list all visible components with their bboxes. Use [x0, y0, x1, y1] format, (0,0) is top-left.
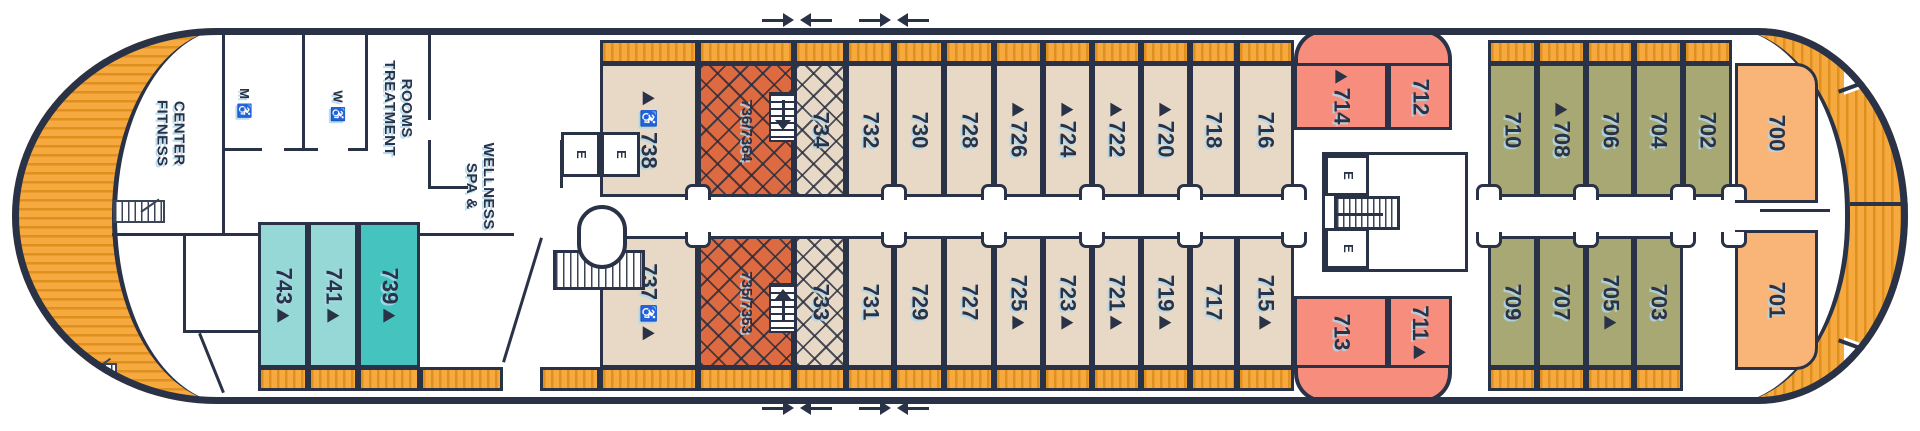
- elevator-label: E: [613, 150, 628, 159]
- stern-corridor-wall: [1760, 209, 1830, 212]
- cabin-number-label: 733: [807, 284, 833, 321]
- elevator[interactable]: E: [1325, 228, 1369, 269]
- cabin-label-wrap: 716: [1240, 66, 1291, 194]
- corridor-door-alcove: [1476, 232, 1502, 248]
- wall-locker-bottom-2: [284, 148, 318, 151]
- cabin-number-label: 730: [906, 112, 932, 149]
- cabin-number-label: 722: [1104, 103, 1130, 158]
- cabin-716[interactable]: 716: [1237, 63, 1294, 197]
- cabin-label-wrap: 729: [897, 239, 941, 365]
- cabin-label-wrap: 702: [1686, 66, 1729, 194]
- balcony-733: [794, 367, 846, 391]
- cabin-label-wrap: 720: [1144, 66, 1187, 194]
- cabin-700[interactable]: 700: [1735, 63, 1818, 203]
- corridor-door-alcove: [1573, 184, 1599, 200]
- balcony-727: [944, 367, 994, 391]
- cabin-number-label: 717: [1201, 284, 1227, 321]
- balcony-734: [794, 40, 846, 64]
- cabin-number-label: 710: [1500, 112, 1526, 149]
- berth-triangle-icon: [1013, 315, 1025, 329]
- cabin-number-label: 726: [1006, 103, 1032, 158]
- cabin-701[interactable]: 701: [1735, 230, 1818, 370]
- corridor-door-alcove: [981, 184, 1007, 200]
- cabin-label-wrap: 717: [1193, 239, 1234, 365]
- cabin-number: 718: [1201, 112, 1227, 149]
- cabin-number: 734: [807, 112, 833, 149]
- cabin-730[interactable]: 730: [894, 63, 944, 197]
- corridor-door-alcove: [1721, 232, 1747, 248]
- vestibule-room: [183, 233, 263, 333]
- cabin-702[interactable]: 702: [1683, 63, 1732, 197]
- balcony-730: [894, 40, 944, 64]
- cabin-711[interactable]: 711: [1388, 296, 1452, 368]
- arrow-head: [800, 13, 811, 27]
- cabin-number-label: 703: [1646, 284, 1672, 321]
- cabin-label-wrap: 710: [1491, 66, 1534, 194]
- treatment-label-line2: ROOMS: [398, 79, 415, 138]
- cabin-number-label: 731: [857, 284, 883, 321]
- balcony-728: [944, 40, 994, 64]
- corridor-door-alcove: [1721, 184, 1747, 200]
- cabin-number: 743: [270, 268, 296, 305]
- balcony-702: [1683, 40, 1732, 64]
- cabin-734[interactable]: 734: [794, 63, 846, 197]
- cabin-number-label: 707: [1549, 284, 1575, 321]
- cabin-label-wrap: 711: [1391, 299, 1449, 365]
- balcony-706: [1586, 40, 1634, 64]
- cabin-713[interactable]: 713: [1294, 296, 1388, 368]
- cabin-label-wrap: 713: [1297, 299, 1385, 365]
- cabin-label-wrap: 741: [311, 225, 355, 365]
- balcony-704: [1634, 40, 1683, 64]
- elevator[interactable]: E: [601, 132, 640, 177]
- balcony-743: [258, 367, 308, 391]
- cabin-number: 721: [1104, 275, 1130, 312]
- balcony-726: [994, 40, 1043, 64]
- wall-mw-divider: [302, 28, 305, 150]
- berth-triangle-icon: [1335, 69, 1347, 83]
- cabin-743[interactable]: 743: [258, 222, 308, 368]
- berth-triangle-icon: [643, 327, 655, 341]
- cabin-label-wrap: 705: [1589, 239, 1631, 365]
- corridor-door-alcove: [1281, 232, 1307, 248]
- corridor-door-alcove: [1670, 184, 1696, 200]
- cabin-number-label: 715: [1253, 275, 1279, 330]
- wall-fitness-right: [222, 28, 225, 233]
- cabin-715[interactable]: 715: [1237, 236, 1294, 368]
- cabin-number: 715: [1253, 275, 1279, 312]
- balcony-715: [1237, 367, 1294, 391]
- cabin-number-label: 706: [1597, 112, 1623, 149]
- arrow-head: [783, 13, 794, 27]
- berth-triangle-icon: [1160, 103, 1172, 117]
- cabin-number-label: 724: [1055, 103, 1081, 158]
- corridor-door-alcove: [881, 184, 907, 200]
- cabin-707[interactable]: 707: [1537, 236, 1586, 368]
- cabin-729[interactable]: 729: [894, 236, 944, 368]
- arrow-head: [897, 401, 908, 415]
- arrow-head: [783, 401, 794, 415]
- cabin-719[interactable]: 719: [1141, 236, 1190, 368]
- cabin-number-label: 736/7364: [737, 99, 754, 162]
- corridor-door-alcove: [1177, 232, 1203, 248]
- cabin-number: 708: [1549, 121, 1575, 158]
- fitness-label-line2: CENTER: [170, 101, 187, 166]
- cabin-number: 716: [1253, 112, 1279, 149]
- balcony-735-7353: [698, 367, 794, 391]
- corridor-door-alcove: [685, 232, 711, 248]
- cabin-label-wrap: 719: [1144, 239, 1187, 365]
- cabin-number-label: 708: [1549, 103, 1575, 158]
- balcony-716: [1237, 40, 1294, 64]
- cabin-724[interactable]: 724: [1043, 63, 1092, 197]
- cabin-number-label: 719: [1153, 275, 1179, 330]
- balcony-741: [308, 367, 358, 391]
- cabin-label-wrap: 726: [997, 66, 1040, 194]
- balcony-707: [1537, 367, 1586, 391]
- cabin-number: 723: [1055, 275, 1081, 312]
- berth-triangle-icon: [1556, 103, 1568, 117]
- arrow-stem: [859, 407, 880, 410]
- berth-triangle-icon: [1414, 345, 1426, 359]
- balcony-736-7364: [698, 40, 794, 64]
- cabin-number-label: 721: [1104, 275, 1130, 330]
- cabin-number: 720: [1153, 121, 1179, 158]
- cabin-label-wrap: 723: [1046, 239, 1089, 365]
- cabin-label-wrap: 704: [1637, 66, 1680, 194]
- cabin-721[interactable]: 721: [1092, 236, 1141, 368]
- arrow-stem: [908, 407, 929, 410]
- balcony-731: [846, 367, 894, 391]
- cabin-number-label: 728: [956, 112, 982, 149]
- womens-label-text: W ♿: [330, 90, 345, 122]
- cabin-710[interactable]: 710: [1488, 63, 1537, 197]
- cabin-number-label: 743: [270, 268, 296, 323]
- cabin-number-label: 723: [1055, 275, 1081, 330]
- wall-treatment-1: [428, 28, 431, 120]
- watertight-door-arrows: [762, 400, 832, 418]
- cabin-725[interactable]: 725: [994, 236, 1043, 368]
- cabin-714[interactable]: 714: [1294, 63, 1388, 130]
- cabin-label-wrap: 706: [1589, 66, 1631, 194]
- cabin-number: 701: [1764, 282, 1790, 319]
- cabin-label-wrap: 709: [1491, 239, 1534, 365]
- arrow-head: [880, 13, 891, 27]
- berth-triangle-icon: [643, 91, 655, 105]
- cabin-label-wrap: 703: [1637, 239, 1680, 365]
- balcony-walkway: [540, 367, 600, 391]
- cabin-number-label: 709: [1500, 284, 1526, 321]
- cabin-732[interactable]: 732: [846, 63, 894, 197]
- cabin-number: 733: [807, 284, 833, 321]
- cabin-number: 741: [320, 268, 346, 305]
- berth-triangle-icon: [1062, 315, 1074, 329]
- elevator[interactable]: E: [1325, 155, 1369, 196]
- cabin-number-label: 734: [807, 112, 833, 149]
- balcony-720: [1141, 40, 1190, 64]
- stair-arrow-stem: [782, 100, 785, 122]
- cabin-number: 717: [1201, 284, 1227, 321]
- balcony-709: [1488, 367, 1537, 391]
- mens-room-label: M ♿: [231, 83, 255, 123]
- watertight-door-arrows: [859, 400, 929, 418]
- cabin-717[interactable]: 717: [1190, 236, 1237, 368]
- cabin-number-label: 712: [1407, 78, 1433, 115]
- cabin-741[interactable]: 741: [308, 222, 358, 368]
- balcony-739: [358, 367, 420, 391]
- cabin-728[interactable]: 728: [944, 63, 994, 197]
- corridor-door-alcove: [1670, 232, 1696, 248]
- balcony-719: [1141, 367, 1190, 391]
- cabin-number: 735/7353: [737, 271, 754, 334]
- corridor-door-alcove: [685, 184, 711, 200]
- cabin-718[interactable]: 718: [1190, 63, 1237, 197]
- cabin-number: 726: [1006, 121, 1032, 158]
- cabin-label-wrap: 708: [1540, 66, 1583, 194]
- berth-triangle-icon: [1062, 103, 1074, 117]
- balcony-721: [1092, 367, 1141, 391]
- cabin-number-label: 705: [1597, 275, 1623, 330]
- cabin-number-label: 741: [320, 268, 346, 323]
- arrow-head: [897, 13, 908, 27]
- watertight-door-arrows: [762, 12, 832, 30]
- cabin-number: 728: [956, 112, 982, 149]
- wall-spa-top: [428, 186, 468, 189]
- treatment-label-line1: TREATMENT: [381, 61, 398, 157]
- cabin-number: 719: [1153, 275, 1179, 312]
- cabin-720[interactable]: 720: [1141, 63, 1190, 197]
- cabin-number: 714: [1328, 87, 1354, 124]
- balcony-705: [1586, 367, 1634, 391]
- cabin-703[interactable]: 703: [1634, 236, 1683, 368]
- corridor-door-alcove: [1079, 232, 1105, 248]
- balcony-738: [600, 40, 698, 64]
- arrow-stem: [811, 407, 832, 410]
- cabin-label-wrap: 731: [849, 239, 891, 365]
- cabin-number: 700: [1764, 115, 1790, 152]
- wall-locker-bottom-3: [348, 148, 368, 151]
- cabin-number: 703: [1646, 284, 1672, 321]
- cabin-label-wrap: 707: [1540, 239, 1583, 365]
- elevator-label: E: [573, 150, 588, 159]
- cabin-number: 724: [1055, 121, 1081, 158]
- cabin-label-wrap: 739: [361, 225, 417, 365]
- cabin-label-wrap: 714: [1297, 66, 1385, 127]
- cabin-number: 725: [1006, 275, 1032, 312]
- cabin-712[interactable]: 712: [1388, 63, 1452, 130]
- berth-triangle-icon: [1111, 315, 1123, 329]
- balcony-729: [894, 367, 944, 391]
- stair-arrow-head: [775, 120, 791, 130]
- cabin-label-wrap: 715: [1240, 239, 1291, 365]
- corridor-door-alcove: [1573, 232, 1599, 248]
- balcony-722: [1092, 40, 1141, 64]
- balcony-717: [1190, 367, 1237, 391]
- cabin-number-label: 718: [1201, 112, 1227, 149]
- arrow-stem: [762, 407, 783, 410]
- cabin-723[interactable]: 723: [1043, 236, 1092, 368]
- wall-treatment-2: [428, 140, 431, 188]
- cabin-706[interactable]: 706: [1586, 63, 1634, 197]
- cabin-number-label: 711: [1407, 305, 1433, 359]
- stairs-icon: [55, 44, 111, 63]
- cabin-label-wrap: 721: [1095, 239, 1138, 365]
- stern-balcony-divider: [1850, 202, 1908, 206]
- cabin-number-label: 725: [1006, 275, 1032, 330]
- cabin-number-label: 729: [906, 284, 932, 321]
- wall-diagonal-spa: [502, 237, 543, 362]
- mens-label-text: M ♿: [236, 88, 251, 119]
- elevator[interactable]: E: [561, 132, 600, 177]
- cabin-number-label: 700: [1764, 115, 1790, 152]
- cabin-number-label: 704: [1646, 112, 1672, 149]
- cabin-number: 709: [1500, 284, 1526, 321]
- cabin-number-label: 716: [1253, 112, 1279, 149]
- balcony-708: [1537, 40, 1586, 64]
- corridor-door-alcove: [1177, 184, 1203, 200]
- balcony-703: [1634, 367, 1683, 391]
- midship-staircase: [1334, 196, 1400, 230]
- balcony-718: [1190, 40, 1237, 64]
- cabin-number: 706: [1597, 112, 1623, 149]
- cabin-739[interactable]: 739: [358, 222, 420, 368]
- berth-triangle-icon: [1260, 315, 1272, 329]
- elevator-label: E: [1340, 171, 1355, 180]
- cabin-number: 710: [1500, 112, 1526, 149]
- fitness-center-label: FITNESS CENTER: [140, 73, 200, 193]
- corridor-door-alcove: [1281, 184, 1307, 200]
- cabin-number: 727: [956, 284, 982, 321]
- spa-label-line2: WELLNESS: [480, 142, 497, 229]
- cabin-731[interactable]: 731: [846, 236, 894, 368]
- balcony-723: [1043, 367, 1092, 391]
- berth-triangle-icon: [1604, 315, 1616, 329]
- cabin-number: 732: [857, 112, 883, 149]
- arrow-stem: [762, 19, 783, 22]
- cabin-number-label: 727: [956, 284, 982, 321]
- corridor-door-alcove: [1476, 184, 1502, 200]
- fitness-label-line1: FITNESS: [153, 100, 170, 167]
- cabin-number: 736/7364: [737, 99, 754, 162]
- cabin-number: 702: [1695, 112, 1721, 149]
- arrow-head: [880, 401, 891, 415]
- berth-triangle-icon: [1013, 103, 1025, 117]
- cabin-label-wrap: 718: [1193, 66, 1234, 194]
- cabin-number: 730: [906, 112, 932, 149]
- stair-arrow-head: [775, 289, 791, 299]
- cabin-number: 722: [1104, 121, 1130, 158]
- cabin-number: 705: [1597, 275, 1623, 312]
- arrow-stem: [859, 19, 880, 22]
- cabin-number: 711: [1407, 305, 1433, 341]
- cabin-label-wrap: 730: [897, 66, 941, 194]
- corridor-door-alcove: [881, 232, 907, 248]
- corridor-door-alcove: [1079, 184, 1105, 200]
- stairs-icon: [113, 200, 165, 223]
- berth-triangle-icon: [1111, 103, 1123, 117]
- berth-triangle-icon: [1160, 315, 1172, 329]
- ship-hull: FITNESS CENTER M ♿ W ♿ TREATMENT ROOMS S…: [12, 28, 1908, 404]
- arrow-head: [800, 401, 811, 415]
- wall-w-right: [365, 28, 368, 150]
- watertight-door-arrows: [859, 12, 929, 30]
- balcony-724: [1043, 40, 1092, 64]
- cabin-705[interactable]: 705: [1586, 236, 1634, 368]
- stairs-icon: [57, 363, 117, 383]
- cabin-number: 713: [1328, 314, 1354, 351]
- cabin-722[interactable]: 722: [1092, 63, 1141, 197]
- cabin-label-wrap: 701: [1738, 233, 1815, 367]
- wall-locker-bottom-1: [222, 148, 262, 151]
- cabin-label-wrap: 743: [261, 225, 305, 365]
- berth-triangle-icon: [277, 308, 289, 322]
- cabin-number-label: 732: [857, 112, 883, 149]
- cabin-number-label: 701: [1764, 282, 1790, 319]
- balcony-732: [846, 40, 894, 64]
- cabin-label-wrap: 725: [997, 239, 1040, 365]
- cabin-708[interactable]: 708: [1537, 63, 1586, 197]
- cabin-733[interactable]: 733: [794, 236, 846, 368]
- cabin-736-7364[interactable]: 736/7364: [698, 63, 794, 197]
- cabin-number: 704: [1646, 112, 1672, 149]
- wheelchair-icon: ♿: [640, 109, 658, 128]
- cabin-label-wrap: 727: [947, 239, 991, 365]
- berth-triangle-icon: [383, 308, 395, 322]
- cabin-709[interactable]: 709: [1488, 236, 1537, 368]
- stair-arrow-stem: [782, 299, 785, 321]
- cabin-number: 731: [857, 284, 883, 321]
- balcony-710: [1488, 40, 1537, 64]
- cabin-number-label: 735/7353: [737, 271, 754, 334]
- womens-room-label: W ♿: [325, 86, 349, 126]
- balcony-walkway: [420, 367, 503, 391]
- cabin-number: 729: [906, 284, 932, 321]
- treatment-rooms-label: TREATMENT ROOMS: [377, 56, 419, 161]
- cabin-label-wrap: 732: [849, 66, 891, 194]
- cabin-727[interactable]: 727: [944, 236, 994, 368]
- cabin-number-label: 739: [376, 268, 402, 323]
- cabin-726[interactable]: 726: [994, 63, 1043, 197]
- corridor-door-alcove: [981, 232, 1007, 248]
- cabin-label-wrap: 722: [1095, 66, 1138, 194]
- cabin-number-label: 702: [1695, 112, 1721, 149]
- arrow-stem: [811, 19, 832, 22]
- cabin-number: 712: [1407, 78, 1433, 115]
- cabin-number-label: 714: [1328, 69, 1354, 124]
- cabin-number-label: 713: [1328, 314, 1354, 351]
- arrow-stem: [908, 19, 929, 22]
- cabin-label-wrap: 724: [1046, 66, 1089, 194]
- elevator-label: E: [1340, 244, 1355, 253]
- cabin-number: 707: [1549, 284, 1575, 321]
- wheelchair-icon: ♿: [640, 304, 658, 323]
- deck-plan: FITNESS CENTER M ♿ W ♿ TREATMENT ROOMS S…: [0, 0, 1920, 431]
- cabin-735-7353[interactable]: 735/7353: [698, 236, 794, 368]
- cabin-label-wrap: 728: [947, 66, 991, 194]
- cabin-label-wrap: 700: [1738, 66, 1815, 200]
- spa-stair-oval: [577, 205, 627, 269]
- cabin-704[interactable]: 704: [1634, 63, 1683, 197]
- berth-triangle-icon: [327, 308, 339, 322]
- cabin-number-label: 720: [1153, 103, 1179, 158]
- cabin-label-wrap: 734: [797, 66, 843, 194]
- balcony-725: [994, 367, 1043, 391]
- balcony-737: [600, 367, 698, 391]
- cabin-label-wrap: 712: [1391, 66, 1449, 127]
- cabin-label-wrap: 733: [797, 239, 843, 365]
- cabin-number: 739: [376, 268, 402, 305]
